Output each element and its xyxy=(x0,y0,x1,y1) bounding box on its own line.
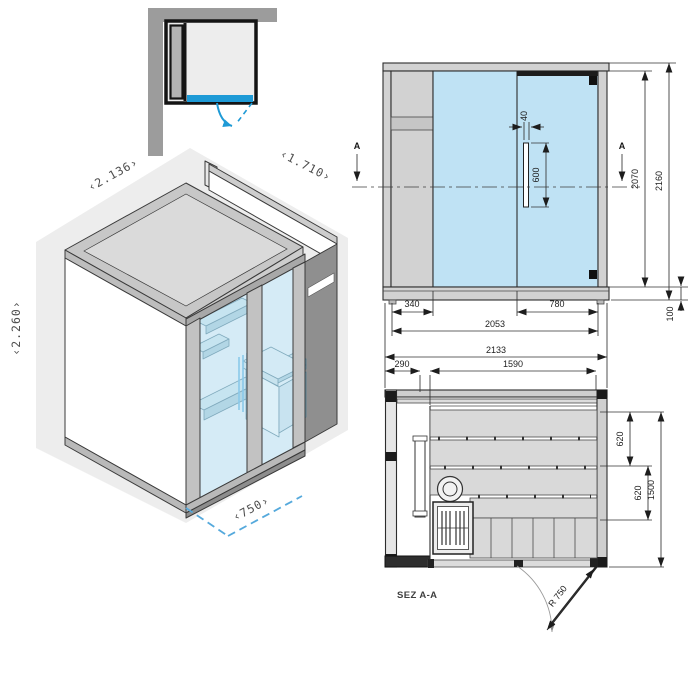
left-panel-width-label: 340 xyxy=(404,299,419,309)
right-wall-block-top xyxy=(597,390,607,399)
dim-heights: 2070 2160 100 xyxy=(609,63,688,322)
inner-width-label: 2053 xyxy=(485,319,505,329)
plan-dims-right: 620 620 1500 xyxy=(600,412,664,567)
front-left-solid-panel xyxy=(385,556,430,567)
door-swing-arc xyxy=(517,566,552,632)
left-solid-panel xyxy=(391,71,433,287)
front-glass-track xyxy=(428,560,597,567)
side-panel-icon xyxy=(171,26,183,99)
panel-joint-band xyxy=(391,117,433,130)
door-hinge-bottom xyxy=(589,270,597,279)
heater-plan xyxy=(433,502,473,554)
front-corner-post xyxy=(186,318,200,506)
door-dim-ext-dash xyxy=(186,508,228,536)
front-elevation-view: A A 40 600 2070 2160 xyxy=(352,63,688,388)
left-wall-block-top xyxy=(386,391,397,402)
right-frame-post xyxy=(293,262,305,448)
right-edge-panel xyxy=(598,71,607,287)
overall-width-label: 2133 xyxy=(486,345,506,355)
glass-front-icon xyxy=(187,95,253,102)
door-swing-arc-icon xyxy=(217,103,232,126)
inner-height-label: 2070 xyxy=(630,169,640,189)
bench-depth-upper-label: 620 xyxy=(615,431,625,446)
top-bar xyxy=(383,63,609,71)
track-block-mullion xyxy=(514,560,523,567)
glass-front xyxy=(433,71,598,287)
section-title: SEZ A-A xyxy=(397,590,437,601)
door-width-label: 780 xyxy=(549,299,564,309)
wall-vertical xyxy=(148,8,163,156)
base-height-label: 100 xyxy=(665,306,675,321)
foot-left xyxy=(389,300,396,304)
door-handle xyxy=(524,143,529,207)
iso-door-width-label: ‹750› xyxy=(230,493,272,524)
door-mullion xyxy=(247,285,262,473)
right-side-panel xyxy=(305,244,337,442)
bucket-outer xyxy=(438,477,463,502)
overall-height-label: 2160 xyxy=(654,171,664,191)
front-left-width-label: 290 xyxy=(394,359,409,369)
left-edge-strip xyxy=(383,71,391,287)
inner-depth-label: 1500 xyxy=(646,480,656,500)
back-wall xyxy=(385,390,607,397)
door-pivot-block xyxy=(590,558,598,567)
technical-drawing-page: ‹2.136› ‹1.710› ‹2.260› ‹750› A A xyxy=(0,0,700,700)
back-wall-inner xyxy=(397,399,600,403)
right-wall xyxy=(597,390,607,567)
door-header xyxy=(517,71,598,76)
plan-dims-top: 290 1590 xyxy=(385,359,596,405)
isometric-view: ‹2.136› ‹1.710› ‹2.260› ‹750› xyxy=(9,147,348,536)
bench-depth-lower-label: 620 xyxy=(633,485,643,500)
iso-height-label: ‹2.260› xyxy=(9,300,23,355)
section-marker-right: A xyxy=(619,141,626,151)
dim-widths: 340 780 2053 2133 xyxy=(385,291,607,388)
right-wall-block-bottom xyxy=(597,557,607,567)
left-wall xyxy=(386,390,397,567)
corner-installation-icon xyxy=(148,8,277,156)
left-wall-block-mid xyxy=(386,452,397,461)
handle-height-label: 600 xyxy=(531,167,541,182)
door-hinge-top xyxy=(589,76,597,85)
door-open-dashed-icon xyxy=(236,103,252,124)
plan-section-view: R 750 290 1590 620 620 1500 SEZ A-A xyxy=(385,359,664,632)
iso-depth-label: ‹1.710› xyxy=(278,147,334,185)
section-marker-left: A xyxy=(354,141,361,151)
wall-pipe xyxy=(413,436,427,517)
track-block-left xyxy=(428,559,434,568)
drawing-canvas: ‹2.136› ‹1.710› ‹2.260› ‹750› A A xyxy=(0,0,700,700)
handle-width-label: 40 xyxy=(519,111,529,121)
door-swing: R 750 xyxy=(517,566,597,632)
bench-length-label: 1590 xyxy=(503,359,523,369)
